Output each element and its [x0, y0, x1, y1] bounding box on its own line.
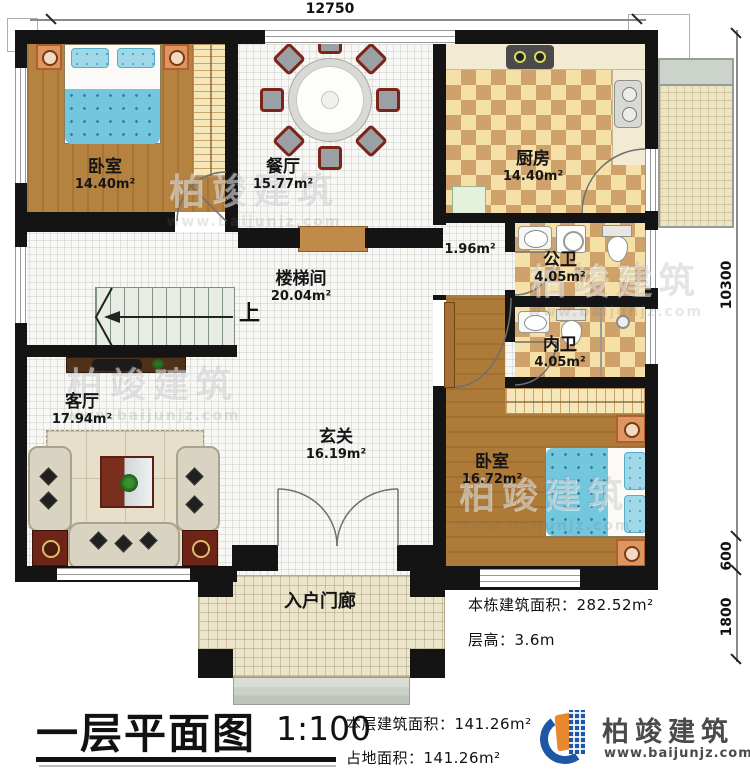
note-floor-area-label: 本层建筑面积：: [346, 715, 455, 733]
window: [15, 247, 27, 323]
sofa: [176, 446, 220, 532]
pillow: [624, 452, 646, 490]
room-area: 16.19m²: [294, 447, 378, 462]
porch-column: [410, 571, 445, 597]
wall: [27, 345, 237, 357]
nightstand: [616, 415, 646, 443]
wall: [238, 228, 300, 248]
door-leaf: [444, 302, 455, 388]
nightstand: [163, 44, 189, 70]
room-label-bedroom1: 卧室 14.40m²: [55, 158, 155, 192]
room-label-public-bath: 公卫 4.05m²: [520, 251, 600, 285]
note-land-area-value: 141.26m²: [424, 749, 501, 767]
blanket: [65, 89, 160, 144]
room-name: 玄关: [294, 428, 378, 447]
dining-chair: [376, 88, 400, 112]
window: [57, 568, 190, 580]
room-label-private-bath: 内卫 4.05m²: [520, 336, 600, 370]
shower-partition: [600, 308, 602, 376]
dimension-right-1800: 1800: [719, 595, 735, 639]
room-name: 公卫: [520, 251, 600, 270]
dimension-right-600: 600: [719, 536, 735, 576]
sheet-title: 一层平面图: [36, 700, 270, 761]
wall: [645, 30, 658, 149]
room-area: 20.04m²: [255, 289, 347, 304]
room-label-kitchen: 厨房 14.40m²: [488, 150, 578, 184]
pillow: [71, 48, 109, 68]
wall: [505, 296, 658, 307]
nightstand: [616, 539, 646, 567]
tv: [92, 359, 142, 371]
door-opening: [175, 212, 225, 232]
note-floor-height-label: 层高：: [468, 631, 515, 649]
wall: [505, 307, 515, 342]
staircase: [95, 287, 235, 347]
fridge: [452, 186, 486, 216]
room-name: 楼梯间: [255, 270, 347, 289]
window: [645, 230, 658, 288]
porch-column: [410, 649, 445, 678]
bathroom-sink: [518, 226, 552, 250]
title-underline: [36, 757, 336, 762]
bed: [64, 44, 161, 144]
wall: [505, 377, 658, 388]
dimension-top-width: 12750: [290, 1, 370, 17]
pillow: [624, 495, 646, 533]
company-logo: 柏竣建筑 www.baijunjz.com: [536, 704, 746, 776]
room-label-bedroom2: 卧室 16.72m²: [448, 453, 536, 487]
washing-machine: [556, 225, 586, 253]
balcony-door: [645, 149, 658, 211]
wardrobe: [193, 44, 227, 177]
dining-chair: [260, 88, 284, 112]
bed: [545, 447, 649, 537]
room-name: 卧室: [448, 453, 536, 472]
sideboard-cabinet: [298, 226, 368, 252]
note-floor-height: 层高：3.6m: [468, 629, 708, 650]
note-land-area-label: 占地面积：: [346, 749, 424, 767]
room-label-foyer: 玄关 16.19m²: [294, 428, 378, 462]
note-building-area-label: 本栋建筑面积：: [468, 596, 577, 614]
dimension-right-depth: 10300: [719, 253, 735, 317]
wall: [15, 212, 175, 232]
window: [645, 309, 658, 364]
room-name: 厨房: [488, 150, 578, 169]
wall: [645, 390, 658, 590]
end-table-lamp: [182, 530, 218, 566]
window: [265, 30, 455, 44]
room-label-corridor: 1.96m²: [428, 242, 512, 257]
room-area: 16.72m²: [448, 472, 536, 487]
blanket: [546, 448, 608, 536]
stairs-up-label: 上: [239, 297, 265, 327]
note-floor-height-value: 3.6m: [515, 631, 555, 649]
room-label-stairwell: 楼梯间 20.04m²: [255, 270, 347, 304]
logo-building-icon: [569, 710, 585, 754]
room-label-living: 客厅 17.94m²: [38, 393, 126, 427]
room-name: 入户门廊: [255, 592, 385, 611]
shower-head: [616, 315, 630, 329]
pillow: [117, 48, 155, 68]
plant: [152, 359, 164, 369]
window: [15, 68, 27, 183]
wardrobe: [505, 388, 645, 414]
logo-url-text: www.baijunjz.com: [604, 746, 746, 761]
room-label-dining: 餐厅 15.77m²: [238, 158, 328, 192]
sofa: [28, 446, 72, 532]
bathroom-sink: [518, 311, 550, 333]
nightstand: [36, 44, 62, 70]
room-name: 卧室: [55, 158, 155, 177]
room-area: 1.96m²: [428, 242, 512, 257]
room-area: 14.40m²: [488, 169, 578, 184]
note-floor-area-value: 141.26m²: [455, 715, 532, 733]
dining-table-lazy-susan: [321, 91, 339, 109]
porch-column: [198, 571, 233, 597]
coffee-table: [100, 456, 154, 508]
floor-plan-sheet: 柏竣建筑 www.baijunjz.com 柏竣建筑 www.baijunjz.…: [0, 0, 750, 780]
kitchen-sink: [614, 80, 642, 128]
wall: [433, 213, 658, 223]
room-area: 4.05m²: [520, 355, 600, 370]
end-table-lamp: [32, 530, 68, 566]
note-building-area-value: 282.52m²: [577, 596, 654, 614]
dimension-line-right: [736, 30, 738, 662]
room-area: 14.40m²: [55, 177, 155, 192]
room-name: 内卫: [520, 336, 600, 355]
room-label-porch: 入户门廊: [255, 592, 385, 611]
wall: [225, 30, 238, 232]
wall: [232, 545, 278, 571]
toilet: [602, 225, 632, 263]
note-building-area: 本栋建筑面积：282.52m²: [468, 594, 708, 615]
plant: [120, 474, 138, 492]
room-name: 餐厅: [238, 158, 328, 177]
room-name: 客厅: [38, 393, 126, 412]
room-area: 15.77m²: [238, 177, 328, 192]
dining-table: [288, 58, 372, 142]
title-underline-thin: [39, 765, 336, 767]
wall: [397, 545, 443, 571]
dimension-line-top: [30, 19, 646, 21]
room-area: 17.94m²: [38, 412, 126, 427]
side-balcony-step: [658, 58, 734, 86]
window: [480, 569, 580, 587]
stove: [506, 45, 554, 69]
wall: [433, 30, 446, 225]
room-area: 4.05m²: [520, 270, 600, 285]
logo-brand-text: 柏竣建筑: [602, 710, 746, 749]
porch-column: [198, 649, 233, 678]
